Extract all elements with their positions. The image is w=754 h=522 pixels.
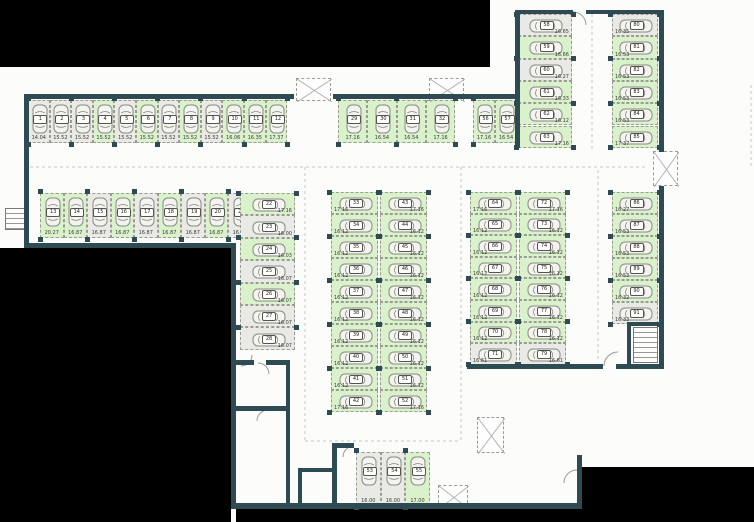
- pillar: [294, 191, 299, 196]
- pillar: [394, 142, 399, 147]
- parking-space-72[interactable]: 7217.16: [519, 192, 566, 214]
- parking-space-83[interactable]: 8316.53: [612, 81, 658, 103]
- pillar: [327, 190, 332, 195]
- parking-space-76[interactable]: 7616.12: [519, 278, 566, 300]
- parking-space-35[interactable]: 3516.12: [331, 236, 378, 258]
- parking-space-80[interactable]: 8016.35: [612, 14, 658, 36]
- parking-space-77[interactable]: 7716.12: [519, 300, 566, 322]
- pillar: [515, 276, 520, 281]
- space-number-badge: 66: [488, 242, 502, 251]
- parking-space-74[interactable]: 7416.12: [519, 235, 566, 257]
- space-size-label: 16.61: [473, 358, 487, 364]
- space-size-label: 16.12: [410, 383, 424, 389]
- parking-space-45[interactable]: 4516.12: [380, 236, 427, 258]
- space-number-badge: 3: [76, 115, 90, 124]
- parking-space-15[interactable]: 1516.87: [87, 193, 111, 238]
- space-number-badge: 12: [271, 115, 285, 124]
- parking-space-23[interactable]: 2316.00: [240, 215, 295, 237]
- parking-space-12[interactable]: 1217.37: [266, 100, 288, 143]
- parking-space-18[interactable]: 1816.87: [158, 193, 182, 238]
- pillar: [285, 96, 290, 101]
- parking-space-54[interactable]: 5416.00: [381, 452, 406, 506]
- space-size-label: 16.87: [112, 230, 134, 236]
- parking-space-27[interactable]: 2716.07: [240, 305, 295, 327]
- parking-space-17[interactable]: 1716.87: [134, 193, 158, 238]
- pillar: [453, 96, 458, 101]
- space-size-label: 16.53: [615, 96, 629, 102]
- space-size-label: 16.53: [615, 251, 629, 257]
- space-number-badge: 11: [249, 115, 263, 124]
- pillar: [376, 278, 381, 283]
- parking-space-70[interactable]: 7016.12: [470, 322, 517, 344]
- parking-space-88[interactable]: 8816.53: [612, 236, 658, 258]
- space-size-label: 16.53: [615, 273, 629, 279]
- parking-space-64[interactable]: 6417.16: [470, 192, 517, 214]
- space-size-label: 16.87: [88, 230, 110, 236]
- parking-space-48[interactable]: 4816.12: [380, 302, 427, 324]
- wall: [24, 243, 236, 248]
- parking-space-86[interactable]: 8616.27: [612, 192, 658, 214]
- parking-space-84[interactable]: 8416.53: [612, 103, 658, 125]
- parking-space-5[interactable]: 515.52: [114, 100, 136, 143]
- space-size-label: 16.33: [555, 96, 569, 102]
- parking-space-28[interactable]: 2816.07: [240, 327, 295, 349]
- space-size-label: 17.16: [334, 207, 348, 213]
- pillar: [294, 235, 299, 240]
- space-number-badge: 5: [120, 115, 134, 124]
- parking-space-78[interactable]: 7816.12: [519, 322, 566, 344]
- parking-space-24[interactable]: 2416.03: [240, 238, 295, 260]
- pillar: [515, 362, 520, 367]
- wall: [616, 364, 664, 369]
- pillar: [657, 190, 662, 195]
- space-size-label: 16.12: [555, 118, 569, 124]
- space-size-label: 16.12: [334, 383, 348, 389]
- space-size-label: 17.37: [615, 141, 629, 147]
- pillar: [236, 280, 241, 285]
- space-size-label: 16.12: [473, 228, 487, 234]
- parking-space-7[interactable]: 715.52: [158, 100, 180, 143]
- parking-space-1[interactable]: 114.04: [28, 100, 50, 143]
- parking-space-8[interactable]: 815.52: [179, 100, 201, 143]
- pillar: [657, 322, 662, 327]
- space-size-label: 16.53: [615, 52, 629, 58]
- space-number-badge: 29: [347, 115, 361, 124]
- pillar: [327, 322, 332, 327]
- pillar: [285, 142, 290, 147]
- pillar: [236, 191, 241, 196]
- pillar: [179, 189, 184, 194]
- space-size-label: 16.87: [159, 230, 181, 236]
- stairs-icon: [633, 327, 658, 363]
- pillar: [85, 237, 90, 242]
- parking-space-46[interactable]: 4616.12: [380, 258, 427, 280]
- space-number-badge: 38: [349, 309, 363, 318]
- parking-space-85[interactable]: 8517.37: [612, 126, 658, 148]
- pillar: [236, 325, 241, 330]
- outside-area: [236, 509, 582, 522]
- space-number-badge: 10: [228, 115, 242, 124]
- space-number-badge: 37: [349, 287, 363, 296]
- parking-space-34[interactable]: 3416.12: [331, 214, 378, 236]
- space-number-badge: 88: [630, 243, 644, 252]
- wall: [518, 10, 573, 14]
- space-number-badge: 70: [488, 328, 502, 337]
- pillar: [426, 322, 431, 327]
- parking-space-36[interactable]: 3616.12: [331, 258, 378, 280]
- pillar: [608, 101, 613, 106]
- pillar: [608, 234, 613, 239]
- pillar: [608, 145, 613, 150]
- pillar: [242, 142, 247, 147]
- space-number-badge: 65: [488, 220, 502, 229]
- space-size-label: 16.12: [410, 273, 424, 279]
- parking-space-62[interactable]: 6216.12: [518, 103, 572, 125]
- parking-space-37[interactable]: 3716.12: [331, 280, 378, 302]
- parking-space-61[interactable]: 6116.33: [518, 81, 572, 103]
- space-size-label: 16.53: [615, 229, 629, 235]
- parking-space-51[interactable]: 5116.12: [380, 368, 427, 390]
- wall: [332, 443, 337, 509]
- pillar: [376, 366, 381, 371]
- shaft-cross-icon: [478, 418, 505, 454]
- space-number-badge: 39: [349, 331, 363, 340]
- pillar: [394, 96, 399, 101]
- space-size-label: 17.16: [474, 135, 494, 141]
- pillar: [571, 12, 576, 17]
- parking-space-4[interactable]: 415.52: [93, 100, 115, 143]
- parking-space-65[interactable]: 6516.12: [470, 214, 517, 236]
- space-size-label: 16.12: [473, 315, 487, 321]
- pillar: [85, 189, 90, 194]
- wall: [298, 468, 302, 504]
- space-number-badge: 28: [262, 335, 276, 344]
- space-size-label: 16.12: [473, 293, 487, 299]
- space-size-label: 16.12: [549, 271, 563, 277]
- space-size-label: 15.52: [180, 135, 200, 141]
- space-number-badge: 8: [184, 115, 198, 124]
- pillar: [38, 237, 43, 242]
- space-number-badge: 62: [540, 110, 554, 119]
- space-size-label: 16.12: [334, 317, 348, 323]
- pillar: [608, 12, 613, 17]
- parking-space-75[interactable]: 7516.12: [519, 257, 566, 279]
- wall: [24, 94, 29, 248]
- space-size-label: 16.87: [135, 230, 157, 236]
- space-size-label: 17.16: [410, 207, 424, 213]
- space-number-badge: 80: [630, 21, 644, 30]
- wall: [286, 360, 290, 507]
- space-size-label: 15.52: [94, 135, 114, 141]
- pillar: [466, 190, 471, 195]
- space-size-label: 16.35: [245, 135, 265, 141]
- pillar: [608, 190, 613, 195]
- space-number-badge: 4: [98, 115, 112, 124]
- space-number-badge: 13: [46, 208, 60, 217]
- parking-space-67[interactable]: 6716.12: [470, 257, 517, 279]
- parking-space-41[interactable]: 4116.12: [331, 368, 378, 390]
- space-number-badge: 60: [540, 66, 554, 75]
- pillar: [471, 142, 476, 147]
- pillar: [514, 12, 519, 17]
- parking-space-22[interactable]: 2217.16: [240, 193, 295, 215]
- space-size-label: 16.12: [410, 229, 424, 235]
- space-size-label: 16.12: [549, 293, 563, 299]
- pillar: [69, 96, 74, 101]
- parking-space-59[interactable]: 5916.66: [518, 36, 572, 58]
- space-size-label: 16.12: [549, 315, 563, 321]
- space-size-label: 16.12: [473, 250, 487, 256]
- space-number-badge: 15: [93, 208, 107, 217]
- space-number-badge: 53: [363, 467, 377, 476]
- parking-space-82[interactable]: 8216.53: [612, 59, 658, 81]
- parking-space-25[interactable]: 2516.07: [240, 260, 295, 282]
- parking-space-38[interactable]: 3816.12: [331, 302, 378, 324]
- parking-space-49[interactable]: 4916.12: [380, 324, 427, 346]
- parking-space-31[interactable]: 3116.54: [397, 100, 426, 143]
- pillar: [657, 145, 662, 150]
- parking-space-2[interactable]: 215.52: [50, 100, 72, 143]
- parking-space-30[interactable]: 3016.54: [367, 100, 396, 143]
- pillar: [376, 322, 381, 327]
- space-size-label: 16.53: [615, 74, 629, 80]
- space-size-label: 20.27: [41, 230, 63, 236]
- parking-space-11[interactable]: 1116.35: [244, 100, 266, 143]
- parking-space-71[interactable]: 7116.61: [470, 343, 517, 365]
- shaft-icon: [296, 78, 331, 101]
- space-number-badge: 68: [488, 285, 502, 294]
- pillar: [426, 234, 431, 239]
- parking-space-91[interactable]: 9116.33: [612, 302, 658, 324]
- space-number-badge: 14: [70, 208, 84, 217]
- parking-space-89[interactable]: 8916.53: [612, 258, 658, 280]
- pillar: [466, 319, 471, 324]
- outside-area: [0, 248, 231, 522]
- space-size-label: 16.12: [549, 336, 563, 342]
- wall: [627, 322, 631, 369]
- space-size-label: 16.12: [549, 228, 563, 234]
- space-size-label: 15.52: [51, 135, 71, 141]
- pillar: [327, 278, 332, 283]
- parking-space-10[interactable]: 1016.06: [222, 100, 244, 143]
- space-number-badge: 57: [501, 115, 515, 124]
- pillar: [565, 362, 570, 367]
- pillar: [294, 325, 299, 330]
- pillar: [226, 189, 231, 194]
- pillar: [242, 96, 247, 101]
- door-arc: [257, 410, 268, 421]
- pillar: [657, 12, 662, 17]
- pillar: [466, 362, 471, 367]
- space-number-badge: 2: [55, 115, 69, 124]
- parking-space-13[interactable]: 1320.27: [40, 193, 64, 238]
- space-size-label: 16.12: [334, 295, 348, 301]
- space-size-label: 16.54: [496, 135, 516, 141]
- space-size-label: 16.12: [549, 250, 563, 256]
- space-size-label: 16.27: [555, 74, 569, 80]
- pillar: [515, 319, 520, 324]
- space-size-label: 16.06: [223, 135, 243, 141]
- pillar: [565, 319, 570, 324]
- pillar: [327, 234, 332, 239]
- space-size-label: 15.52: [159, 135, 179, 141]
- space-number-badge: 86: [630, 199, 644, 208]
- wall: [659, 186, 664, 324]
- space-size-label: 17.16: [334, 405, 348, 411]
- pillar: [426, 190, 431, 195]
- space-number-badge: 24: [262, 245, 276, 254]
- pillar: [38, 189, 43, 194]
- parking-space-66[interactable]: 6616.12: [470, 235, 517, 257]
- pillar: [198, 142, 203, 147]
- pillar: [565, 190, 570, 195]
- wall: [467, 364, 603, 369]
- parking-space-33[interactable]: 3317.16: [331, 192, 378, 214]
- parking-space-81[interactable]: 8116.53: [612, 36, 658, 58]
- space-size-label: 16.07: [278, 298, 292, 304]
- parking-space-79[interactable]: 7916.61: [519, 343, 566, 365]
- pillar: [403, 505, 408, 510]
- parking-space-32[interactable]: 3217.16: [426, 100, 455, 143]
- space-size-label: 16.12: [473, 336, 487, 342]
- pillar: [608, 56, 613, 61]
- parking-space-90[interactable]: 9016.32: [612, 280, 658, 302]
- space-number-badge: 83: [630, 88, 644, 97]
- space-size-label: 16.12: [410, 295, 424, 301]
- parking-space-26[interactable]: 2616.07: [240, 283, 295, 305]
- parking-space-50[interactable]: 5016.12: [380, 346, 427, 368]
- pillar: [571, 101, 576, 106]
- parking-space-57[interactable]: 5716.54: [495, 100, 517, 143]
- space-size-label: 16.32: [615, 295, 629, 301]
- parking-space-55[interactable]: 5517.00: [405, 452, 430, 506]
- space-size-label: 16.66: [555, 52, 569, 58]
- parking-space-63[interactable]: 6317.16: [518, 126, 572, 148]
- parking-space-29[interactable]: 2917.16: [338, 100, 367, 143]
- parking-space-68[interactable]: 6816.12: [470, 278, 517, 300]
- space-size-label: 16.61: [549, 358, 563, 364]
- parking-space-60[interactable]: 6016.27: [518, 59, 572, 81]
- pillar: [514, 56, 519, 61]
- space-size-label: 16.07: [278, 276, 292, 282]
- wall: [586, 10, 664, 14]
- pillar: [515, 233, 520, 238]
- pillar: [112, 142, 117, 147]
- parking-space-47[interactable]: 4716.12: [380, 280, 427, 302]
- pillar: [514, 101, 519, 106]
- space-number-badge: 30: [376, 115, 390, 124]
- space-size-label: 16.00: [278, 231, 292, 237]
- parking-space-40[interactable]: 4016.12: [331, 346, 378, 368]
- space-size-label: 16.87: [182, 230, 204, 236]
- pillar: [376, 234, 381, 239]
- parking-space-9[interactable]: 915.52: [201, 100, 223, 143]
- pillar: [179, 237, 184, 242]
- parking-space-52[interactable]: 5217.16: [380, 390, 427, 412]
- shaft-icon: [653, 151, 678, 186]
- pillar: [198, 96, 203, 101]
- parking-space-14[interactable]: 1416.87: [64, 193, 88, 238]
- space-number-badge: 18: [164, 208, 178, 217]
- space-size-label: 16.12: [410, 251, 424, 257]
- space-number-badge: 33: [349, 199, 363, 208]
- space-number-badge: 82: [630, 66, 644, 75]
- parking-space-43[interactable]: 4317.16: [380, 192, 427, 214]
- pillar: [354, 505, 359, 510]
- pillar: [657, 278, 662, 283]
- space-size-label: 16.03: [278, 253, 292, 259]
- space-number-badge: 84: [630, 110, 644, 119]
- space-number-badge: 55: [412, 467, 426, 476]
- space-size-label: 16.12: [334, 229, 348, 235]
- space-number-badge: 16: [117, 208, 131, 217]
- space-size-label: 16.87: [65, 230, 87, 236]
- space-number-badge: 27: [262, 312, 276, 321]
- space-number-badge: 58: [540, 21, 554, 30]
- pillar: [132, 237, 137, 242]
- space-number-badge: 64: [488, 199, 502, 208]
- pillar: [515, 190, 520, 195]
- pillar: [608, 322, 613, 327]
- parking-space-3[interactable]: 315.52: [71, 100, 93, 143]
- space-size-label: 16.54: [368, 135, 395, 141]
- wall: [298, 468, 332, 472]
- outside-area: [0, 0, 490, 67]
- parking-space-20[interactable]: 2016.87: [205, 193, 229, 238]
- space-number-badge: 81: [630, 43, 644, 52]
- parking-space-39[interactable]: 3916.12: [331, 324, 378, 346]
- pillar: [657, 101, 662, 106]
- parking-space-53[interactable]: 5316.00: [356, 452, 381, 506]
- parking-space-19[interactable]: 1916.87: [181, 193, 205, 238]
- wall: [236, 406, 290, 411]
- space-size-label: 16.54: [398, 135, 425, 141]
- space-number-badge: 40: [349, 353, 363, 362]
- parking-space-87[interactable]: 8716.53: [612, 214, 658, 236]
- pillar: [426, 366, 431, 371]
- pillar: [294, 280, 299, 285]
- space-number-badge: 26: [262, 290, 276, 299]
- space-size-label: 15.52: [137, 135, 157, 141]
- pillar: [112, 96, 117, 101]
- space-number-badge: 25: [262, 267, 276, 276]
- parking-space-73[interactable]: 7316.12: [519, 214, 566, 236]
- space-number-badge: 1: [33, 115, 47, 124]
- pillar: [327, 366, 332, 371]
- space-size-label: 16.12: [410, 317, 424, 323]
- parking-space-6[interactable]: 615.52: [136, 100, 158, 143]
- space-size-label: 14.04: [29, 135, 49, 141]
- floor-plan: 114.04215.52315.52415.52515.52615.52715.…: [0, 0, 754, 522]
- space-size-label: 16.12: [410, 361, 424, 367]
- parking-space-42[interactable]: 4217.16: [331, 390, 378, 412]
- space-size-label: 16.35: [615, 29, 629, 35]
- pillar: [571, 56, 576, 61]
- space-size-label: 16.87: [206, 230, 228, 236]
- parking-space-16[interactable]: 1616.87: [111, 193, 135, 238]
- space-number-badge: 59: [540, 43, 554, 52]
- parking-space-58[interactable]: 5816.65: [518, 14, 572, 36]
- parking-space-56[interactable]: 5617.16: [473, 100, 495, 143]
- parking-space-69[interactable]: 6916.12: [470, 300, 517, 322]
- pillar: [565, 276, 570, 281]
- space-number-badge: 71: [488, 350, 502, 359]
- parking-space-44[interactable]: 4416.12: [380, 214, 427, 236]
- pillar: [26, 96, 31, 101]
- space-number-badge: 9: [206, 115, 220, 124]
- space-number-badge: 31: [406, 115, 420, 124]
- pillar: [657, 56, 662, 61]
